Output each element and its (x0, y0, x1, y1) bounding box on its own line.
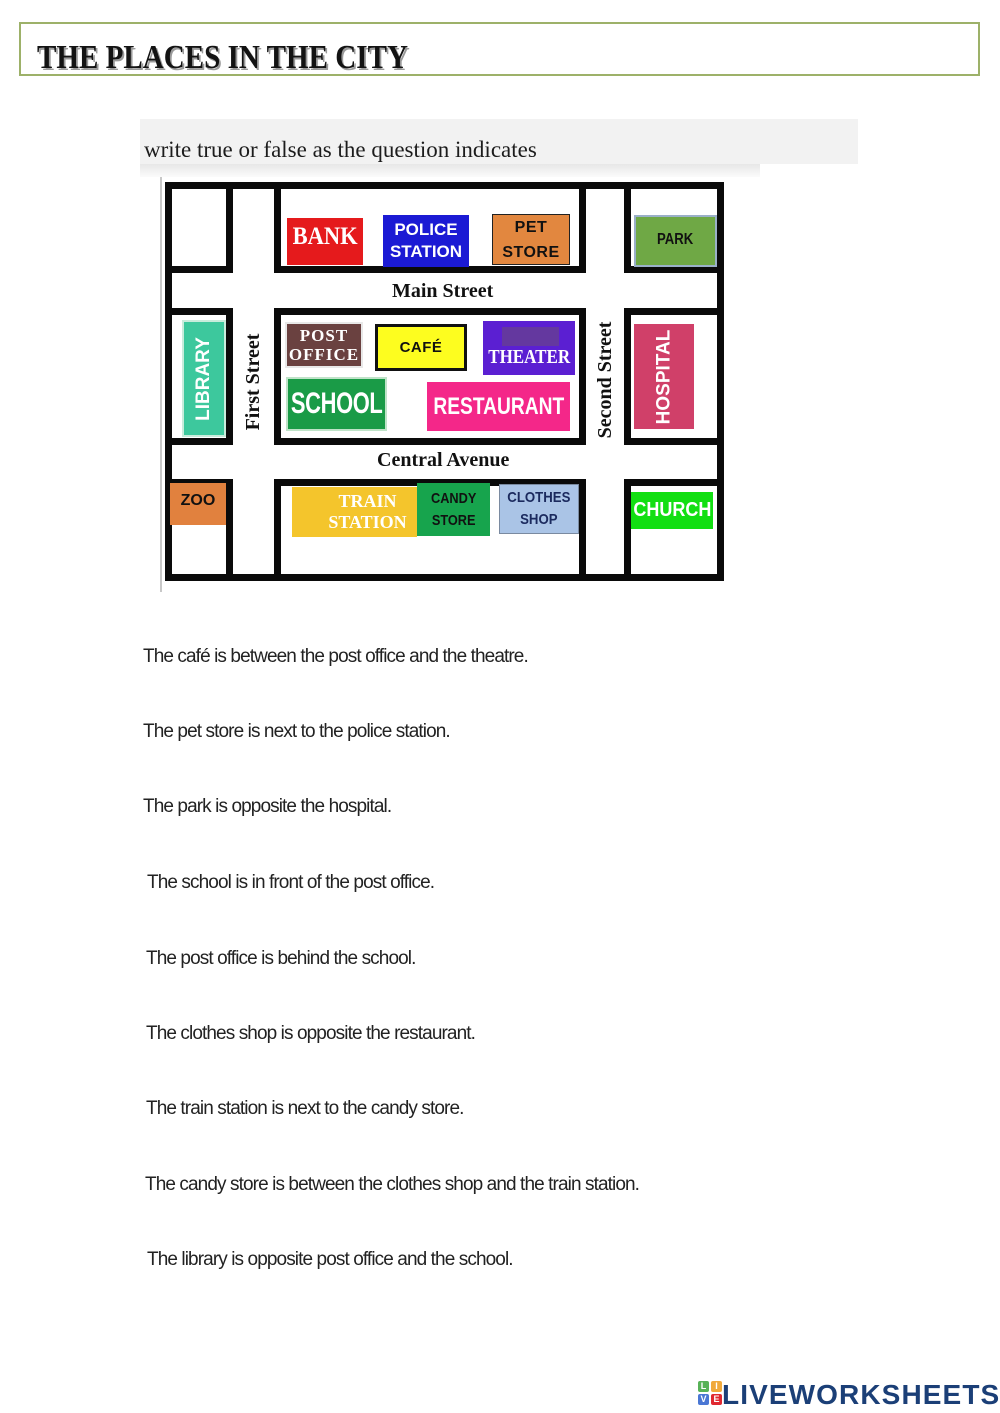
svg-text:THE PLACES IN THE CITY: THE PLACES IN THE CITY (37, 39, 408, 76)
